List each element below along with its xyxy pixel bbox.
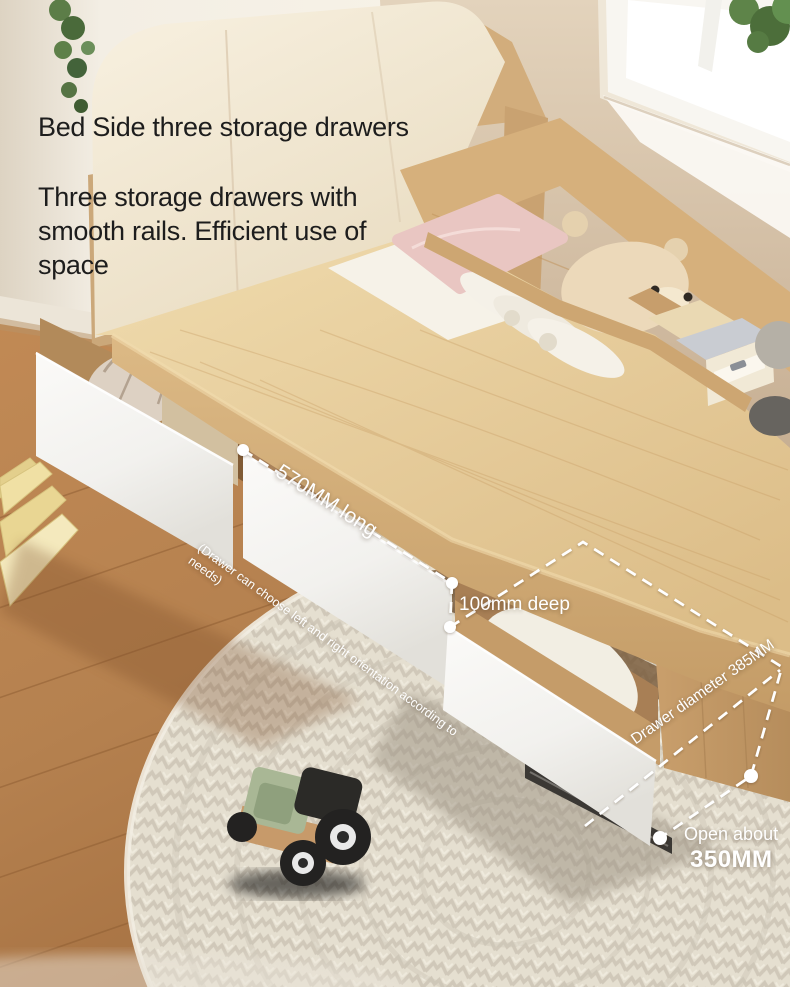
depth-annotation: 100mm deep [459, 594, 570, 616]
product-showcase: Bed Side three storage drawers Three sto… [0, 0, 790, 987]
open-distance-value: 350MM [690, 846, 773, 874]
bedroom-scene [0, 0, 790, 987]
dimension-dot [744, 769, 758, 783]
dimension-dot [444, 621, 456, 633]
open-distance-label: Open about [684, 824, 778, 845]
page-description: Three storage drawers with smooth rails.… [38, 180, 366, 282]
dimension-dot [653, 831, 667, 845]
dimension-dot [446, 577, 458, 589]
page-title: Bed Side three storage drawers [38, 112, 409, 143]
dimension-dot [237, 444, 249, 456]
